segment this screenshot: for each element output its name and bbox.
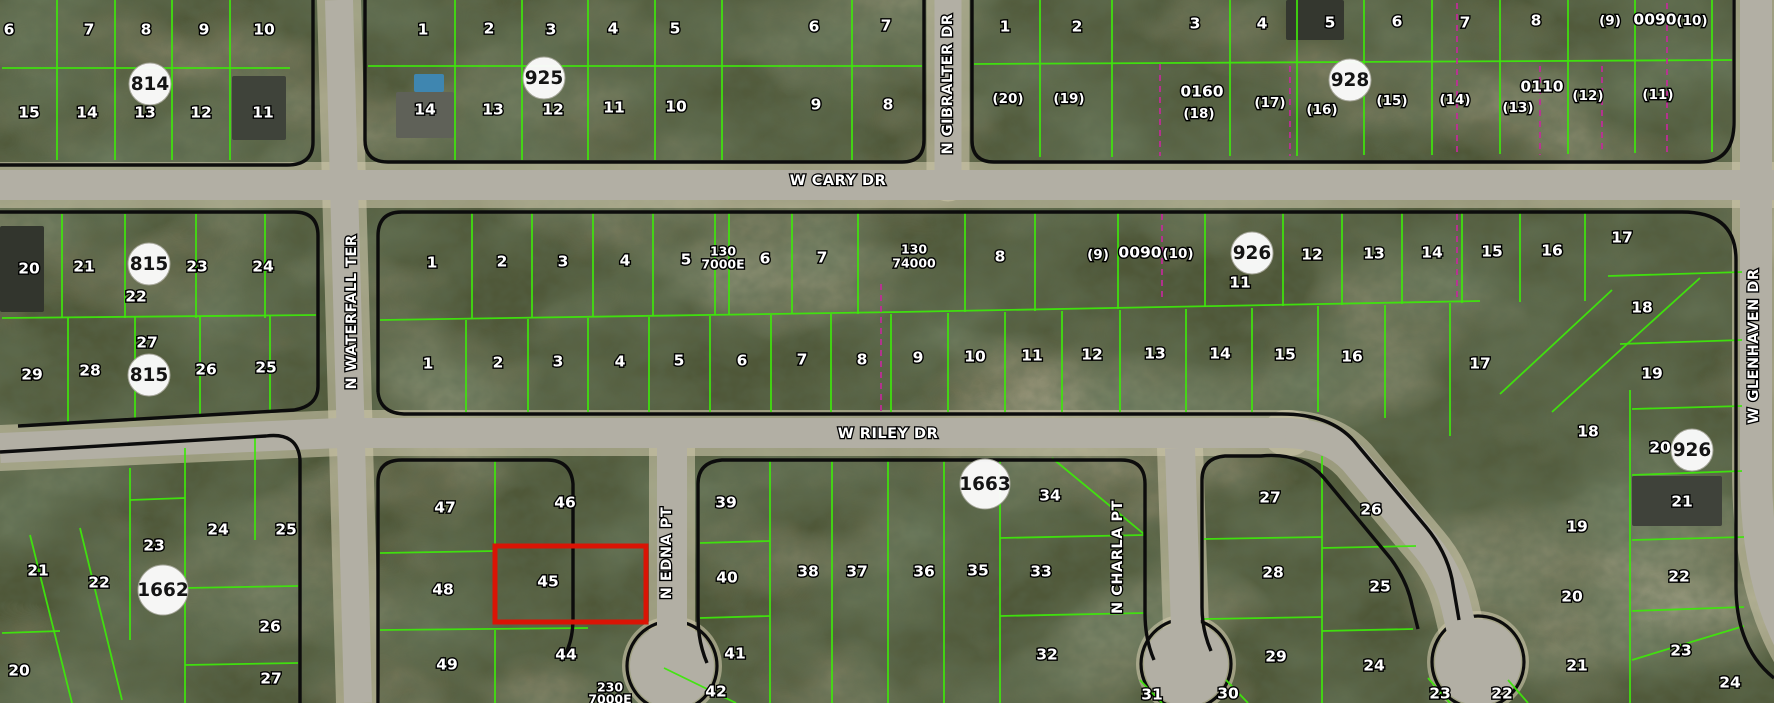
lot-label: 13	[134, 104, 156, 122]
lot-label: 21	[1671, 493, 1693, 511]
lot-label: (15)	[1376, 93, 1407, 109]
lot-label: 1	[418, 21, 429, 39]
street-label: W CARY DR	[790, 173, 887, 189]
lot-label: 23	[1670, 642, 1692, 660]
lot-label: 26	[259, 618, 281, 636]
lot-label: 28	[79, 362, 101, 380]
block-marker-label: 815	[130, 365, 169, 386]
lot-label: (10)	[1676, 13, 1707, 29]
lot-label: (16)	[1306, 102, 1337, 118]
lot-label: (18)	[1183, 106, 1214, 122]
lot-label: 30	[1217, 685, 1239, 703]
lot-label: 26	[1360, 501, 1382, 519]
lot-label: 7	[797, 351, 808, 369]
lot-label: 1	[1000, 18, 1011, 36]
lot-label: 28	[1262, 564, 1284, 582]
lot-label: 36	[913, 563, 935, 581]
lot-label: 17	[1469, 355, 1491, 373]
lot-label: 7000E	[701, 257, 744, 272]
lot-label: 19	[1641, 365, 1663, 383]
lot-label: 39	[715, 494, 737, 512]
lot-label: 15	[1274, 346, 1296, 364]
lot-label: 38	[797, 563, 819, 581]
lot-label: 24	[252, 258, 274, 276]
lot-label: 23	[1429, 685, 1451, 703]
lot-label: 16	[1341, 348, 1363, 366]
block-marker-label: 926	[1233, 243, 1272, 264]
lot-label: 20	[18, 260, 40, 278]
lot-label: 11	[252, 104, 274, 122]
lot-label: 0090	[1118, 244, 1161, 262]
lot-label: 3	[558, 253, 569, 271]
lot-label: 49	[436, 656, 458, 674]
lot-label: 45	[537, 573, 559, 591]
block-marker-label: 928	[1331, 70, 1370, 91]
lot-label: 6	[4, 21, 15, 39]
lot-label: 22	[88, 574, 110, 592]
lot-label: 10	[964, 348, 986, 366]
lot-label: 24	[1363, 657, 1385, 675]
lot-label: 11	[1021, 347, 1043, 365]
lot-label: 25	[255, 359, 277, 377]
lot-label: (9)	[1087, 247, 1109, 263]
lot-label: 34	[1039, 487, 1061, 505]
lot-label: 18	[1577, 423, 1599, 441]
lot-label: 11	[1229, 274, 1251, 292]
lot-label: 12	[1081, 346, 1103, 364]
lot-label: 3	[1190, 15, 1201, 33]
lot-label: 8	[1531, 12, 1542, 30]
lot-label: 20	[1561, 588, 1583, 606]
lot-label: 2	[1072, 18, 1083, 36]
lot-label: 17	[1611, 229, 1633, 247]
lot-label: 10	[253, 21, 275, 39]
lot-label: 13	[1363, 245, 1385, 263]
lot-label: (14)	[1439, 92, 1470, 108]
lot-label: 10	[665, 98, 687, 116]
map-canvas[interactable]: 6789101514131211123456714131211109812345…	[0, 0, 1774, 703]
lot-label: 12	[190, 104, 212, 122]
lot-label: 1	[427, 254, 438, 272]
street-label: W GLENHAVEN DR	[1746, 268, 1762, 423]
parcel-map[interactable]: 6789101514131211123456714131211109812345…	[0, 0, 1774, 703]
lot-label: 9	[913, 349, 924, 367]
lot-label: 5	[681, 251, 692, 269]
block-marker-label: 814	[131, 74, 170, 95]
lot-label: 7	[84, 21, 95, 39]
lot-label: 23	[186, 258, 208, 276]
lot-label: 13	[1144, 345, 1166, 363]
lot-label: 8	[141, 21, 152, 39]
lot-label: 24	[207, 521, 229, 539]
lot-label: (20)	[992, 91, 1023, 107]
lot-label: (13)	[1502, 100, 1533, 116]
lot-label: 1	[423, 355, 434, 373]
lot-label: 12	[542, 101, 564, 119]
lot-label: (11)	[1642, 87, 1673, 103]
lot-label: 13	[482, 101, 504, 119]
lot-label: (17)	[1254, 95, 1285, 111]
lot-label: 21	[73, 258, 95, 276]
lot-label: 24	[1719, 674, 1741, 692]
block-marker-label: 925	[525, 68, 564, 89]
lot-label: 8	[995, 248, 1006, 266]
lot-label: 7	[881, 17, 892, 35]
lot-label: 9	[811, 96, 822, 114]
lot-label: 0160	[1180, 83, 1223, 101]
lot-label: 3	[546, 21, 557, 39]
lot-label: 33	[1030, 563, 1052, 581]
lot-label: 8	[857, 351, 868, 369]
lot-label: 29	[21, 366, 43, 384]
lot-label: 23	[143, 537, 165, 555]
lot-label: 14	[1209, 345, 1231, 363]
lot-label: 26	[195, 361, 217, 379]
lot-label: 12	[1301, 246, 1323, 264]
lot-label: 41	[724, 645, 746, 663]
block-marker-label: 1662	[137, 580, 189, 601]
lot-label: 6	[737, 352, 748, 370]
block-marker-label: 815	[130, 254, 169, 275]
lot-label: 0110	[1520, 78, 1563, 96]
lot-label: 22	[125, 288, 147, 306]
lot-label: 21	[27, 562, 49, 580]
lot-label: 21	[1566, 657, 1588, 675]
lot-label: 32	[1036, 646, 1058, 664]
lot-label: 2	[497, 253, 508, 271]
street-label: N GIBRALTER DR	[940, 14, 956, 155]
lot-label: 0090	[1633, 11, 1676, 29]
lot-label: 7000E	[588, 692, 631, 703]
lot-label: 27	[260, 670, 282, 688]
lot-label: 4	[620, 252, 631, 270]
lot-label: 2	[484, 20, 495, 38]
lot-label: 3	[553, 353, 564, 371]
lot-label: 27	[1259, 489, 1281, 507]
street-label: N WATERFALL TER	[344, 234, 360, 389]
lot-label: 25	[1369, 578, 1391, 596]
lot-label: 130	[901, 242, 927, 257]
lot-label: 7	[817, 249, 828, 267]
lot-label: 4	[615, 353, 626, 371]
lot-label: 42	[705, 683, 727, 701]
lot-label: 48	[432, 581, 454, 599]
lot-label: 6	[760, 250, 771, 268]
lot-label: 40	[716, 569, 738, 587]
block-marker-label: 926	[1673, 440, 1712, 461]
lot-label: 20	[8, 662, 30, 680]
lot-label: 44	[555, 646, 577, 664]
lot-label: 5	[1325, 14, 1336, 32]
lot-label: 7	[1460, 14, 1471, 32]
lot-label: 37	[846, 563, 868, 581]
lot-label: 46	[554, 494, 576, 512]
building	[414, 74, 444, 92]
lot-label: 47	[434, 499, 456, 517]
lot-label: 18	[1631, 299, 1653, 317]
lot-label: 9	[199, 21, 210, 39]
lot-label: (19)	[1053, 91, 1084, 107]
lot-label: 29	[1265, 648, 1287, 666]
lot-label: 14	[76, 104, 98, 122]
lot-label: 25	[275, 521, 297, 539]
lot-label: (10)	[1162, 246, 1193, 262]
lot-label: 16	[1541, 242, 1563, 260]
lot-label: 19	[1566, 518, 1588, 536]
lot-label: 8	[883, 96, 894, 114]
lot-label: 22	[1491, 685, 1513, 703]
lot-label: 20	[1649, 439, 1671, 457]
road-pavement	[1180, 448, 1186, 628]
block-marker-label: 1663	[959, 474, 1011, 495]
lot-label: 5	[674, 352, 685, 370]
lot-label: (12)	[1572, 88, 1603, 104]
lot-label: 14	[414, 101, 436, 119]
lot-label: 15	[18, 104, 40, 122]
lot-label: 6	[809, 18, 820, 36]
lot-label: 6	[1392, 13, 1403, 31]
lot-label: 4	[608, 20, 619, 38]
street-label: W RILEY DR	[838, 426, 939, 442]
lot-label: 74000	[892, 256, 936, 271]
lot-label: 22	[1668, 568, 1690, 586]
lot-label: 14	[1421, 244, 1443, 262]
lot-label: 4	[1257, 15, 1268, 33]
lot-label: 27	[136, 334, 158, 352]
lot-label: (9)	[1599, 13, 1621, 29]
street-label: N EDNA PT	[659, 507, 675, 600]
street-label: N CHARLA PT	[1110, 500, 1126, 614]
lot-label: 5	[670, 20, 681, 38]
lot-label: 2	[493, 354, 504, 372]
lot-label: 11	[603, 99, 625, 117]
lot-label: 35	[967, 562, 989, 580]
lot-label: 15	[1481, 243, 1503, 261]
lot-label: 31	[1141, 686, 1163, 703]
